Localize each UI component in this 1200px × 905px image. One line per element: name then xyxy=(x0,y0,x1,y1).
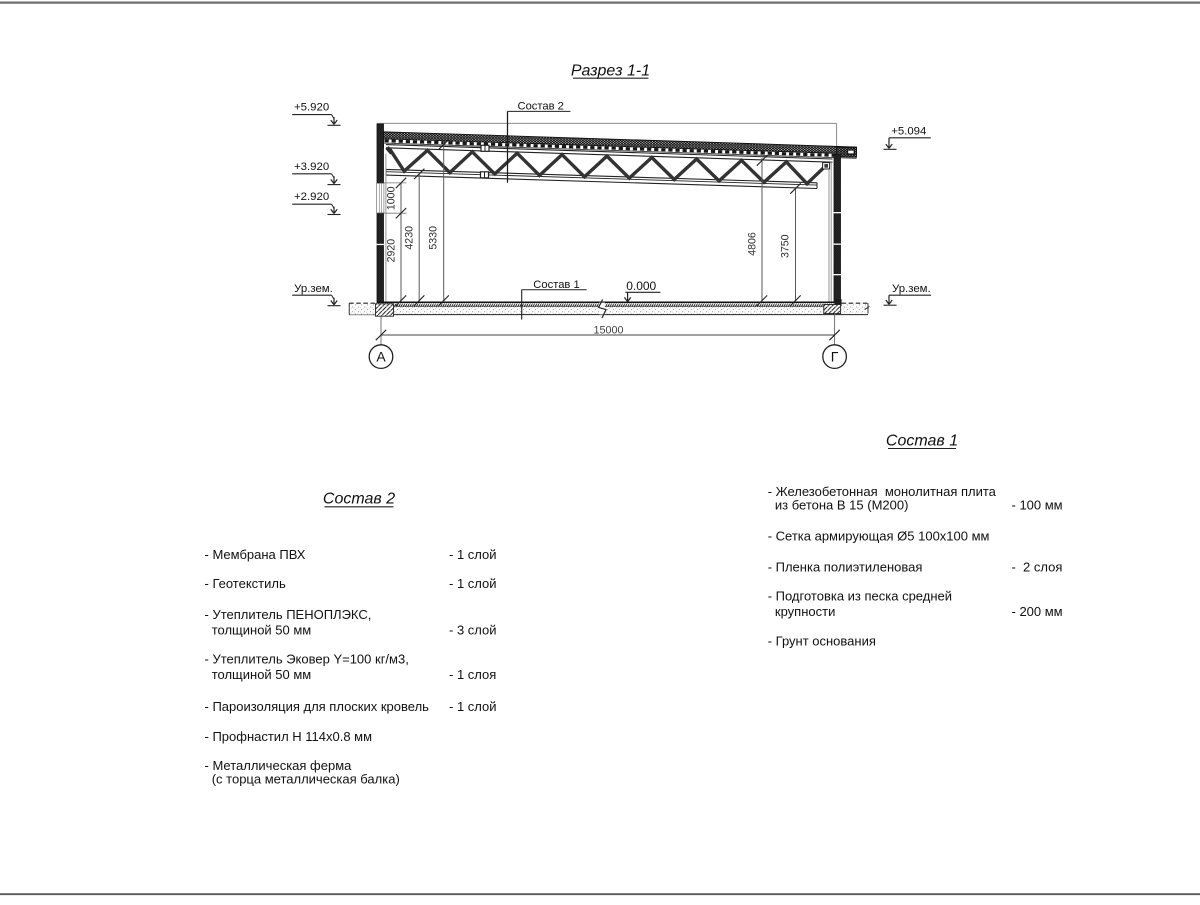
svg-text:- 1 слой: - 1 слой xyxy=(449,699,497,714)
svg-text:- Сетка армирующая Ø5 100х100: - Сетка армирующая Ø5 100х100 мм xyxy=(768,528,990,543)
svg-text:- 1 слой: - 1 слой xyxy=(449,576,497,591)
svg-text:- 2 слоя: - 2 слоя xyxy=(1012,559,1063,574)
svg-text:- Профнастил Н 114х0.8 мм: - Профнастил Н 114х0.8 мм xyxy=(205,729,373,744)
svg-text:3750: 3750 xyxy=(780,234,792,258)
svg-text:- 1 слоя: - 1 слоя xyxy=(449,667,496,682)
svg-text:- 3 слой: - 3 слой xyxy=(449,623,497,638)
svg-text:- Пленка полиэтиленовая: - Пленка полиэтиленовая xyxy=(768,559,923,574)
svg-text:- Геотекстиль: - Геотекстиль xyxy=(205,576,286,591)
svg-text:Состав 2: Состав 2 xyxy=(323,491,395,508)
svg-text:1000: 1000 xyxy=(385,186,397,210)
svg-text:Состав 2: Состав 2 xyxy=(518,101,564,113)
svg-text:из бетона В 15 (М200): из бетона В 15 (М200) xyxy=(768,498,909,513)
svg-text:- Мембрана ПВХ: - Мембрана ПВХ xyxy=(205,547,306,562)
svg-text:4806: 4806 xyxy=(746,232,758,256)
svg-text:Состав 1: Состав 1 xyxy=(533,279,579,291)
svg-text:- Подготовка из песка средней: - Подготовка из песка средней xyxy=(768,589,952,604)
svg-text:А: А xyxy=(376,349,386,365)
svg-text:5330: 5330 xyxy=(428,226,440,250)
svg-text:- Утеплитель ПЕНОПЛЭКС,: - Утеплитель ПЕНОПЛЭКС, xyxy=(205,607,372,622)
svg-text:15000: 15000 xyxy=(593,324,623,336)
svg-text:крупности: крупности xyxy=(768,604,836,619)
svg-text:2920: 2920 xyxy=(385,239,397,263)
svg-text:- 200 мм: - 200 мм xyxy=(1012,604,1063,619)
svg-text:- Пароизоляция для плоских кро: - Пароизоляция для плоских кровель xyxy=(205,699,430,714)
svg-text:Ур.зем.: Ур.зем. xyxy=(892,283,931,295)
svg-text:0.000: 0.000 xyxy=(626,279,656,293)
svg-text:+2.920: +2.920 xyxy=(294,191,329,203)
svg-text:- 100 мм: - 100 мм xyxy=(1012,498,1063,513)
svg-text:- Утеплитель Эковер Y=100 кг/м: - Утеплитель Эковер Y=100 кг/м3, xyxy=(205,652,409,667)
svg-text:+5.920: +5.920 xyxy=(294,102,329,114)
svg-text:- 1 слой: - 1 слой xyxy=(449,547,497,562)
svg-text:- Железобетонная монолитная п: - Железобетонная монолитная плита xyxy=(768,484,997,499)
svg-text:+3.920: +3.920 xyxy=(294,161,329,173)
svg-text:4230: 4230 xyxy=(403,226,415,250)
svg-text:+5.094: +5.094 xyxy=(891,125,926,137)
svg-text:толщиной 50 мм: толщиной 50 мм xyxy=(205,623,312,638)
svg-text:толщиной 50 мм: толщиной 50 мм xyxy=(205,667,312,682)
svg-text:Состав 1: Состав 1 xyxy=(886,432,958,449)
svg-text:Разрез 1-1: Разрез 1-1 xyxy=(571,63,650,80)
svg-text:Г: Г xyxy=(831,349,839,365)
svg-text:(с торца металлическая балка): (с торца металлическая балка) xyxy=(205,772,400,787)
svg-text:Ур.зем.: Ур.зем. xyxy=(294,283,333,295)
svg-text:- Грунт основания: - Грунт основания xyxy=(768,633,876,648)
